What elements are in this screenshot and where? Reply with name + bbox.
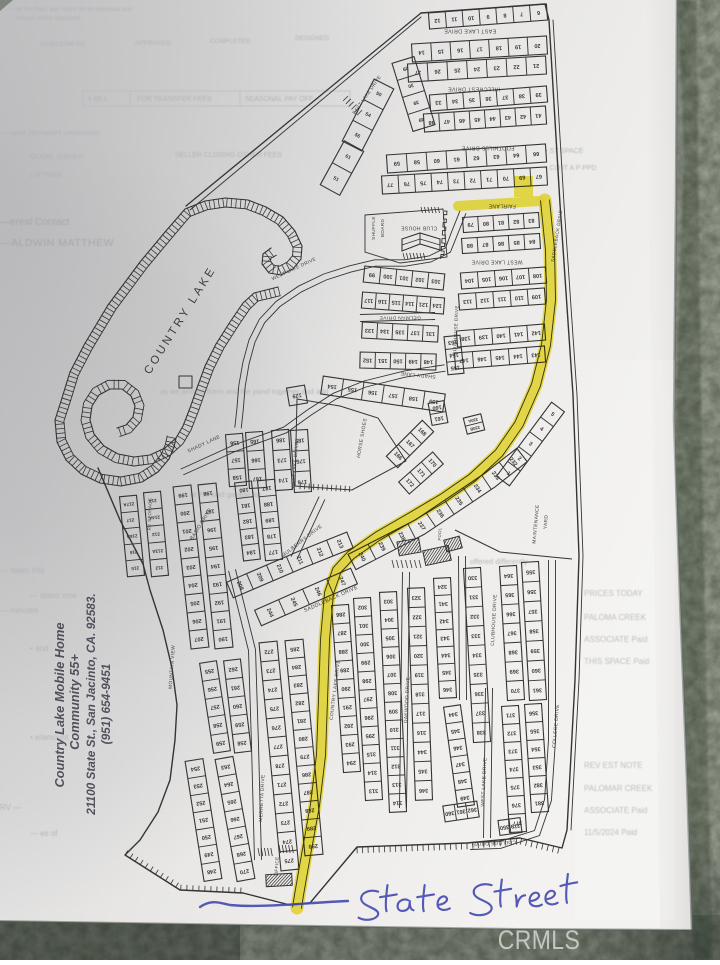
svg-text:106: 106 bbox=[499, 274, 509, 281]
svg-text:275: 275 bbox=[284, 857, 294, 864]
svg-text:133: 133 bbox=[365, 327, 375, 333]
svg-text:21100 State St., San Jacinto,: 21100 State St., San Jacinto, CA. 92583. bbox=[84, 593, 98, 815]
svg-text:19: 19 bbox=[515, 43, 522, 49]
svg-text:344: 344 bbox=[440, 651, 451, 658]
svg-text:MODEL OWNER: MODEL OWNER bbox=[30, 154, 83, 161]
svg-text:88: 88 bbox=[466, 242, 473, 248]
svg-text:370: 370 bbox=[511, 687, 521, 693]
svg-text:86: 86 bbox=[498, 240, 505, 246]
svg-text:361: 361 bbox=[533, 686, 543, 692]
svg-text:342: 342 bbox=[439, 617, 449, 623]
svg-text:HILLCREST DRIVE: HILLCREST DRIVE bbox=[448, 86, 501, 92]
svg-text:80: 80 bbox=[482, 220, 489, 226]
svg-text:200: 200 bbox=[180, 509, 190, 516]
svg-text:306: 306 bbox=[386, 652, 396, 658]
svg-text:142: 142 bbox=[531, 329, 541, 336]
svg-text:EAST LAKE DRIVE: EAST LAKE DRIVE bbox=[444, 28, 496, 34]
svg-text:CLUB HOUSE: CLUB HOUSE bbox=[400, 225, 437, 231]
svg-text:103: 103 bbox=[431, 277, 441, 284]
svg-text:318: 318 bbox=[415, 690, 425, 696]
svg-text:373: 373 bbox=[508, 747, 518, 754]
svg-text:321: 321 bbox=[413, 633, 423, 639]
svg-text:12: 12 bbox=[434, 17, 441, 23]
svg-text:— es of: — es of bbox=[30, 829, 58, 838]
svg-text:59: 59 bbox=[394, 160, 401, 166]
svg-text:33: 33 bbox=[435, 99, 442, 105]
svg-text:140: 140 bbox=[496, 332, 506, 339]
svg-text:62: 62 bbox=[473, 154, 480, 160]
svg-text:294: 294 bbox=[346, 759, 357, 766]
svg-text:107: 107 bbox=[516, 273, 526, 280]
svg-text:moneys which approved: moneys which approved bbox=[15, 16, 80, 22]
svg-text:182: 182 bbox=[242, 517, 252, 524]
svg-text:371: 371 bbox=[506, 711, 516, 718]
svg-text:141: 141 bbox=[514, 330, 524, 337]
svg-text:296: 296 bbox=[364, 714, 374, 720]
svg-text:355: 355 bbox=[526, 568, 536, 574]
svg-text:73: 73 bbox=[453, 177, 460, 183]
svg-text:333: 333 bbox=[471, 632, 481, 638]
svg-text:356: 356 bbox=[529, 709, 539, 716]
svg-text:382: 382 bbox=[533, 781, 543, 788]
svg-text:138: 138 bbox=[461, 334, 471, 341]
svg-text:201: 201 bbox=[182, 527, 192, 534]
svg-text:341: 341 bbox=[438, 600, 448, 606]
svg-text:BOARD: BOARD bbox=[380, 219, 385, 238]
svg-text:174: 174 bbox=[278, 476, 289, 483]
svg-text:104: 104 bbox=[464, 277, 475, 284]
svg-text:282: 282 bbox=[295, 699, 305, 706]
svg-text:6: 6 bbox=[537, 9, 541, 15]
svg-text:360: 360 bbox=[445, 809, 455, 816]
svg-text:324: 324 bbox=[437, 583, 448, 590]
svg-text:110: 110 bbox=[514, 294, 523, 301]
svg-text:215: 215 bbox=[131, 565, 140, 571]
svg-text:272: 272 bbox=[279, 800, 289, 807]
svg-text:304: 304 bbox=[383, 616, 394, 623]
svg-text:134: 134 bbox=[379, 327, 390, 334]
svg-text:287: 287 bbox=[337, 629, 347, 636]
svg-text:192: 192 bbox=[214, 598, 224, 605]
svg-text:121: 121 bbox=[419, 301, 429, 308]
svg-text:323: 323 bbox=[412, 594, 422, 600]
svg-text:213: 213 bbox=[152, 531, 161, 537]
svg-text:17: 17 bbox=[476, 45, 483, 51]
svg-text:63: 63 bbox=[493, 153, 500, 159]
svg-text:157: 157 bbox=[231, 456, 241, 463]
svg-text:345: 345 bbox=[442, 669, 452, 675]
svg-text:SELLER CLOSING OTHER FEES: SELLER CLOSING OTHER FEES bbox=[175, 152, 282, 159]
svg-text:198: 198 bbox=[203, 489, 213, 496]
svg-text:RV —: RV — bbox=[0, 803, 21, 812]
svg-text:—ALDWIN MATTHEW: —ALDWIN MATTHEW bbox=[0, 237, 114, 249]
svg-text:365: 365 bbox=[505, 591, 515, 597]
svg-text:347: 347 bbox=[455, 760, 465, 767]
svg-text:99: 99 bbox=[369, 271, 376, 278]
svg-text:109: 109 bbox=[531, 293, 541, 300]
svg-text:153: 153 bbox=[448, 338, 458, 345]
svg-text:— minutes: — minutes bbox=[0, 606, 38, 615]
svg-text:83: 83 bbox=[528, 217, 535, 223]
svg-text:310: 310 bbox=[389, 726, 399, 732]
svg-text:39: 39 bbox=[535, 91, 542, 97]
svg-text:337: 337 bbox=[475, 709, 485, 715]
svg-text:22: 22 bbox=[513, 63, 520, 69]
svg-text:—erest Contact: —erest Contact bbox=[0, 217, 70, 228]
svg-text:147: 147 bbox=[459, 356, 469, 363]
svg-text:26: 26 bbox=[434, 68, 441, 74]
svg-text:290: 290 bbox=[341, 685, 351, 692]
svg-text:38: 38 bbox=[519, 92, 526, 98]
svg-text:8: 8 bbox=[503, 12, 507, 18]
svg-text:375: 375 bbox=[510, 783, 520, 790]
svg-text:203: 203 bbox=[186, 563, 196, 570]
svg-text:205: 205 bbox=[190, 599, 200, 606]
svg-text:58: 58 bbox=[413, 158, 420, 164]
svg-text:358: 358 bbox=[529, 627, 539, 633]
svg-text:372: 372 bbox=[507, 729, 517, 736]
svg-text:18: 18 bbox=[496, 44, 503, 50]
svg-text:322: 322 bbox=[412, 613, 422, 619]
svg-text:113: 113 bbox=[463, 298, 472, 305]
svg-text:ASSOCIATE Paid: ASSOCIATE Paid bbox=[584, 635, 647, 644]
svg-text:81: 81 bbox=[498, 219, 505, 225]
svg-text:331: 331 bbox=[469, 593, 479, 599]
svg-text:112: 112 bbox=[480, 296, 489, 303]
svg-text:76: 76 bbox=[404, 180, 411, 186]
svg-text:at the said garage for: at the said garage for bbox=[190, 490, 261, 499]
svg-text:346: 346 bbox=[443, 686, 453, 692]
svg-text:191: 191 bbox=[216, 617, 226, 624]
svg-text:316: 316 bbox=[417, 729, 427, 735]
svg-text:144: 144 bbox=[512, 352, 523, 359]
svg-text:• ST SPACE: • ST SPACE bbox=[545, 148, 584, 155]
svg-text:356: 356 bbox=[527, 588, 537, 594]
svg-text:206: 206 bbox=[192, 617, 202, 624]
svg-text:FOOTHILLS DRIVE: FOOTHILLS DRIVE bbox=[461, 145, 514, 151]
svg-text:308: 308 bbox=[388, 689, 398, 695]
svg-text:— dates this: — dates this bbox=[0, 566, 44, 575]
svg-text:11/5/2024 Paid: 11/5/2024 Paid bbox=[584, 828, 637, 837]
svg-text:— same permanent commission: — same permanent commission bbox=[0, 130, 100, 137]
svg-text:131: 131 bbox=[426, 330, 436, 336]
svg-text:82: 82 bbox=[513, 218, 520, 224]
svg-text:OFFICE: OFFICE bbox=[274, 856, 280, 875]
svg-text:61: 61 bbox=[453, 156, 460, 162]
svg-text:101: 101 bbox=[399, 274, 409, 281]
svg-text:379: 379 bbox=[510, 822, 520, 829]
svg-text:146: 146 bbox=[477, 355, 487, 362]
svg-text:314: 314 bbox=[392, 799, 403, 806]
svg-text:286: 286 bbox=[302, 771, 312, 778]
svg-text:345: 345 bbox=[418, 767, 428, 773]
svg-text:11: 11 bbox=[451, 15, 457, 21]
svg-text:176: 176 bbox=[297, 478, 307, 485]
svg-text:(951) 654-9451: (951) 654-9451 bbox=[99, 664, 113, 745]
svg-text:71: 71 bbox=[486, 176, 493, 182]
svg-text:196: 196 bbox=[207, 526, 217, 533]
svg-text:APPROVED: APPROVED bbox=[135, 40, 171, 47]
svg-text:SHUFFLE: SHUFFLE bbox=[371, 216, 376, 240]
svg-text:279: 279 bbox=[300, 753, 310, 760]
svg-text:261: 261 bbox=[230, 684, 240, 691]
svg-text:189: 189 bbox=[265, 516, 275, 523]
svg-text:350: 350 bbox=[499, 823, 509, 830]
svg-text:299: 299 bbox=[361, 659, 371, 665]
svg-text:67: 67 bbox=[536, 173, 543, 179]
svg-text:374: 374 bbox=[508, 765, 519, 772]
svg-text:312: 312 bbox=[391, 762, 401, 768]
svg-text:272: 272 bbox=[264, 648, 274, 655]
svg-text:47: 47 bbox=[444, 118, 451, 124]
svg-text:281: 281 bbox=[297, 717, 307, 724]
svg-text:THIS SPACE Paid: THIS SPACE Paid bbox=[584, 657, 649, 666]
svg-text:PRICES TODAY: PRICES TODAY bbox=[584, 589, 643, 598]
svg-text:216: 216 bbox=[129, 549, 138, 555]
svg-text:367: 367 bbox=[507, 629, 517, 635]
svg-text:346: 346 bbox=[419, 787, 429, 793]
svg-text:87: 87 bbox=[482, 241, 489, 247]
svg-text:177: 177 bbox=[268, 548, 278, 555]
svg-text:115: 115 bbox=[392, 299, 401, 306]
svg-text:289: 289 bbox=[340, 666, 350, 673]
svg-text:293: 293 bbox=[345, 740, 355, 747]
svg-text:37: 37 bbox=[502, 94, 509, 100]
svg-text:193: 193 bbox=[212, 580, 222, 587]
svg-text:111: 111 bbox=[497, 295, 506, 302]
svg-text:Community 55+: Community 55+ bbox=[67, 654, 82, 750]
svg-text:46: 46 bbox=[459, 117, 466, 123]
svg-text:300: 300 bbox=[360, 640, 370, 646]
svg-text:9: 9 bbox=[486, 13, 490, 19]
svg-text:292: 292 bbox=[344, 722, 354, 729]
svg-text:116: 116 bbox=[378, 298, 387, 305]
svg-text:139: 139 bbox=[478, 333, 488, 340]
svg-text:360: 360 bbox=[531, 667, 541, 673]
svg-text:35: 35 bbox=[468, 96, 475, 102]
svg-text:369: 369 bbox=[509, 668, 519, 674]
svg-text:72: 72 bbox=[470, 176, 477, 182]
svg-text:145: 145 bbox=[495, 354, 505, 361]
svg-text:364: 364 bbox=[503, 572, 514, 579]
svg-text:149: 149 bbox=[408, 358, 418, 364]
svg-text:79: 79 bbox=[467, 221, 474, 227]
svg-text:376: 376 bbox=[511, 801, 521, 808]
svg-text:317: 317 bbox=[416, 710, 426, 716]
svg-text:258: 258 bbox=[237, 739, 247, 746]
svg-text:42: 42 bbox=[520, 113, 527, 119]
svg-text:330: 330 bbox=[468, 574, 478, 580]
svg-text:10: 10 bbox=[468, 14, 475, 20]
svg-text:REV EST NOTE: REV EST NOTE bbox=[584, 761, 643, 770]
svg-text:311: 311 bbox=[390, 744, 399, 750]
svg-text:184: 184 bbox=[245, 548, 256, 555]
svg-text:45: 45 bbox=[474, 116, 481, 122]
svg-text:295: 295 bbox=[365, 732, 375, 738]
svg-text:105: 105 bbox=[482, 275, 492, 282]
svg-text:41: 41 bbox=[535, 112, 542, 118]
svg-text:117: 117 bbox=[364, 297, 373, 304]
svg-text:x BILL: x BILL bbox=[88, 96, 108, 103]
svg-text:313: 313 bbox=[369, 787, 379, 793]
svg-text:15: 15 bbox=[438, 48, 445, 54]
svg-text:283: 283 bbox=[293, 681, 303, 688]
svg-text:277: 277 bbox=[273, 743, 283, 750]
svg-text:43: 43 bbox=[505, 114, 512, 120]
svg-text:158: 158 bbox=[232, 473, 242, 480]
svg-text:276: 276 bbox=[271, 724, 281, 731]
svg-text:314: 314 bbox=[367, 769, 378, 776]
svg-text:366: 366 bbox=[506, 610, 516, 616]
svg-text:— for the that I was reach for: — for the that I was reach for an import… bbox=[8, 7, 132, 13]
svg-text:336: 336 bbox=[474, 690, 484, 696]
svg-text:Country Lake Mobile Home: Country Lake Mobile Home bbox=[52, 623, 67, 788]
svg-text:135: 135 bbox=[395, 328, 405, 334]
svg-text:181: 181 bbox=[241, 501, 251, 508]
svg-text:297: 297 bbox=[363, 695, 373, 701]
svg-text:303: 303 bbox=[384, 597, 394, 603]
svg-text:183: 183 bbox=[244, 533, 254, 540]
svg-text:DESIGNED: DESIGNED bbox=[295, 35, 329, 42]
svg-text:150: 150 bbox=[393, 357, 403, 363]
svg-text:207: 207 bbox=[194, 635, 204, 642]
svg-text:• CO IT A P PPD: • CO IT A P PPD bbox=[545, 165, 597, 172]
svg-text:7: 7 bbox=[520, 10, 524, 16]
svg-text:217: 217 bbox=[126, 517, 135, 523]
svg-text:301: 301 bbox=[359, 622, 369, 628]
svg-text:309: 309 bbox=[389, 707, 399, 713]
svg-text:278: 278 bbox=[275, 762, 285, 769]
svg-text:186: 186 bbox=[276, 436, 286, 443]
svg-text:199: 199 bbox=[178, 491, 188, 498]
svg-text:194: 194 bbox=[210, 562, 221, 569]
svg-text:262: 262 bbox=[228, 665, 238, 672]
svg-text:108: 108 bbox=[533, 272, 543, 279]
svg-text:286: 286 bbox=[336, 610, 346, 617]
svg-text:190: 190 bbox=[218, 635, 228, 642]
svg-text:195: 195 bbox=[209, 544, 219, 551]
svg-text:PALOMAR CREEK: PALOMAR CREEK bbox=[584, 784, 653, 793]
svg-text:154: 154 bbox=[448, 351, 459, 358]
svg-text:77: 77 bbox=[387, 181, 394, 187]
svg-text:75: 75 bbox=[420, 179, 427, 185]
svg-text:280: 280 bbox=[298, 735, 308, 742]
svg-text:335: 335 bbox=[473, 671, 483, 677]
svg-text:260: 260 bbox=[232, 702, 242, 709]
svg-text:353: 353 bbox=[532, 763, 542, 770]
svg-text:188: 188 bbox=[263, 500, 273, 507]
svg-text:359: 359 bbox=[530, 647, 540, 653]
svg-text:114: 114 bbox=[404, 300, 414, 307]
svg-text:— dates now: — dates now bbox=[30, 591, 77, 600]
svg-text:173: 173 bbox=[277, 456, 287, 463]
svg-text:WEST LAKE DRIVE: WEST LAKE DRIVE bbox=[471, 259, 522, 265]
svg-text:284: 284 bbox=[291, 663, 302, 670]
svg-text:307: 307 bbox=[387, 671, 397, 677]
svg-text:355: 355 bbox=[530, 727, 540, 734]
svg-text:COMPLETED: COMPLETED bbox=[210, 38, 251, 45]
svg-text:354: 354 bbox=[530, 745, 541, 752]
svg-text:MOBILE/MFGD: MOBILE/MFGD bbox=[40, 41, 86, 48]
svg-text:124: 124 bbox=[431, 302, 442, 309]
svg-text:166: 166 bbox=[251, 456, 261, 463]
svg-text:285: 285 bbox=[290, 645, 300, 652]
svg-text:274: 274 bbox=[267, 686, 278, 693]
svg-text:274: 274 bbox=[281, 838, 292, 845]
svg-text:137: 137 bbox=[410, 329, 420, 335]
svg-text:180: 180 bbox=[239, 486, 249, 493]
svg-text:60: 60 bbox=[433, 157, 440, 163]
svg-text:213A: 213A bbox=[151, 548, 163, 554]
svg-text:273: 273 bbox=[266, 667, 276, 674]
svg-text:36: 36 bbox=[485, 95, 492, 101]
svg-text:SEASONAL PAY OFF —: SEASONAL PAY OFF — bbox=[245, 96, 322, 103]
svg-text:151: 151 bbox=[378, 357, 388, 363]
svg-text:• and: • and bbox=[30, 644, 48, 653]
svg-text:212: 212 bbox=[155, 565, 164, 571]
svg-text:349: 349 bbox=[460, 794, 470, 801]
svg-text:298: 298 bbox=[362, 677, 372, 683]
svg-text:357: 357 bbox=[528, 608, 538, 614]
svg-text:346: 346 bbox=[453, 744, 463, 751]
svg-text:16: 16 bbox=[457, 46, 464, 52]
svg-text:152: 152 bbox=[363, 357, 373, 363]
svg-text:291: 291 bbox=[342, 703, 352, 710]
svg-text:offered differently: offered differently bbox=[470, 557, 528, 566]
svg-text:70: 70 bbox=[503, 175, 510, 181]
svg-text:315: 315 bbox=[366, 750, 376, 756]
svg-text:275: 275 bbox=[269, 705, 279, 712]
svg-text:259: 259 bbox=[235, 720, 245, 727]
svg-text:100: 100 bbox=[383, 272, 393, 279]
svg-text:334: 334 bbox=[471, 651, 482, 658]
svg-text:362: 362 bbox=[467, 806, 477, 813]
svg-text:288: 288 bbox=[338, 648, 348, 655]
svg-text:178: 178 bbox=[267, 532, 277, 539]
svg-text:LISTINGS: LISTINGS bbox=[30, 172, 62, 179]
svg-text:344: 344 bbox=[417, 748, 427, 754]
svg-text:CRMLS: CRMLS bbox=[498, 925, 580, 955]
svg-text:21: 21 bbox=[533, 62, 540, 68]
svg-text:187: 187 bbox=[262, 484, 272, 491]
svg-text:302: 302 bbox=[358, 603, 368, 609]
svg-text:368: 368 bbox=[508, 648, 518, 654]
svg-text:25: 25 bbox=[454, 66, 461, 72]
svg-text:320: 320 bbox=[414, 652, 424, 658]
svg-text:85: 85 bbox=[513, 239, 520, 245]
svg-text:271: 271 bbox=[277, 781, 287, 788]
svg-text:ASSOCIATE Paid: ASSOCIATE Paid bbox=[584, 806, 647, 815]
svg-text:FOR TRANSFER FEES: FOR TRANSFER FEES bbox=[137, 96, 212, 103]
svg-text:332: 332 bbox=[470, 613, 480, 619]
svg-text:POOL: POOL bbox=[437, 527, 442, 541]
svg-text:148: 148 bbox=[424, 358, 434, 364]
svg-text:343: 343 bbox=[440, 634, 450, 640]
svg-text:66: 66 bbox=[533, 150, 540, 156]
svg-text:20: 20 bbox=[534, 42, 541, 48]
svg-text:23: 23 bbox=[493, 64, 500, 70]
svg-text:155: 155 bbox=[450, 364, 460, 371]
svg-text:202: 202 bbox=[184, 545, 194, 552]
svg-text:204: 204 bbox=[187, 581, 198, 588]
svg-text:PALOMA CREEK: PALOMA CREEK bbox=[584, 613, 647, 622]
svg-text:305: 305 bbox=[385, 634, 395, 640]
svg-text:319: 319 bbox=[415, 671, 425, 677]
svg-text:273: 273 bbox=[280, 819, 290, 826]
svg-text:102: 102 bbox=[415, 276, 425, 283]
